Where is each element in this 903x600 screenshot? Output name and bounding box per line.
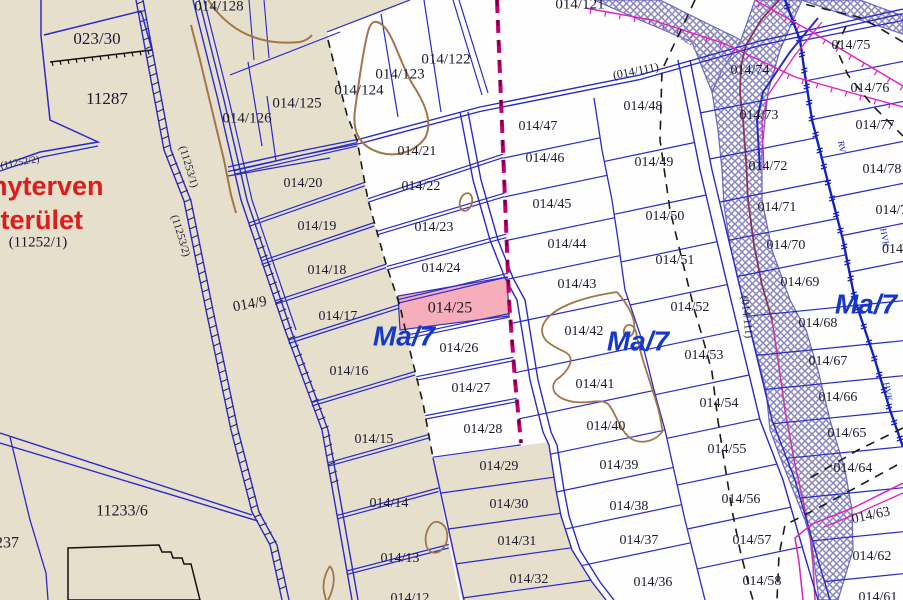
svg-text:014/21: 014/21 (398, 144, 437, 159)
svg-text:014/39: 014/39 (600, 458, 639, 473)
svg-text:014/24: 014/24 (422, 261, 461, 276)
svg-text:014/13: 014/13 (381, 551, 420, 566)
svg-text:014/12: 014/12 (391, 591, 430, 600)
svg-text:014/66: 014/66 (819, 390, 858, 405)
svg-text:014/22: 014/22 (402, 179, 441, 194)
svg-text:014/48: 014/48 (624, 99, 663, 114)
svg-text:014/28: 014/28 (464, 422, 503, 437)
svg-text:014/77: 014/77 (856, 118, 895, 133)
svg-text:014/71: 014/71 (758, 200, 797, 215)
svg-text:014/62: 014/62 (853, 549, 892, 564)
svg-text:014/37: 014/37 (620, 533, 659, 548)
svg-text:014/17: 014/17 (319, 309, 358, 324)
svg-text:014/123: 014/123 (375, 66, 424, 82)
svg-text:014/49: 014/49 (635, 155, 674, 170)
svg-text:014/75: 014/75 (832, 38, 871, 53)
svg-text:014/30: 014/30 (490, 497, 529, 512)
svg-text:014/50: 014/50 (646, 209, 685, 224)
svg-text:014/68: 014/68 (799, 316, 838, 331)
svg-text:014/58: 014/58 (743, 574, 782, 589)
svg-text:014/45: 014/45 (533, 197, 572, 212)
svg-text:014/26: 014/26 (440, 341, 479, 356)
svg-text:11237: 11237 (0, 535, 19, 552)
svg-text:014/56: 014/56 (722, 492, 761, 507)
svg-text:014/23: 014/23 (415, 220, 454, 235)
svg-text:014/72: 014/72 (749, 159, 788, 174)
svg-text:014/57: 014/57 (733, 533, 772, 548)
svg-text:014/76: 014/76 (851, 81, 890, 96)
svg-text:014/121: 014/121 (555, 0, 604, 12)
svg-text:014/74: 014/74 (731, 63, 770, 78)
svg-text:014/32: 014/32 (510, 572, 549, 587)
svg-text:014/122: 014/122 (421, 51, 470, 67)
svg-text:014/38: 014/38 (610, 499, 649, 514)
svg-text:014/29: 014/29 (480, 459, 519, 474)
svg-text:014/128: 014/128 (194, 0, 243, 14)
svg-text:014/55: 014/55 (708, 442, 747, 457)
svg-text:014/54: 014/54 (700, 396, 739, 411)
svg-text:014/125: 014/125 (272, 95, 321, 111)
svg-text:Ma/7: Ma/7 (607, 325, 671, 356)
svg-text:014/19: 014/19 (298, 219, 337, 234)
svg-text:014/42: 014/42 (565, 324, 604, 339)
svg-text:014/70: 014/70 (767, 238, 806, 253)
svg-text:Ma/7: Ma/7 (835, 288, 899, 319)
svg-text:Ma/7: Ma/7 (373, 320, 437, 351)
svg-text:014/52: 014/52 (671, 300, 710, 315)
svg-text:014/51: 014/51 (656, 253, 695, 268)
svg-text:014/126: 014/126 (222, 110, 272, 126)
svg-text:014/36: 014/36 (634, 575, 673, 590)
svg-text:014/73: 014/73 (740, 108, 779, 123)
svg-text:014/79: 014/79 (876, 203, 903, 218)
svg-text:014/40: 014/40 (587, 419, 626, 434)
svg-text:014/15: 014/15 (355, 432, 394, 447)
svg-text:023/30: 023/30 (73, 29, 120, 48)
svg-text:014/124: 014/124 (334, 82, 384, 98)
svg-text:014/64: 014/64 (834, 461, 873, 476)
svg-text:hyterven: hyterven (0, 171, 104, 201)
svg-text:014/47: 014/47 (519, 119, 558, 134)
svg-text:014/27: 014/27 (452, 381, 491, 396)
svg-text:014/31: 014/31 (498, 534, 537, 549)
svg-text:014/46: 014/46 (526, 151, 565, 166)
svg-text:RV: RV (836, 140, 848, 154)
svg-text:lterület: lterület (0, 205, 83, 235)
svg-text:014/14: 014/14 (370, 496, 409, 511)
svg-text:014/20: 014/20 (284, 176, 323, 191)
svg-text:014/69: 014/69 (781, 275, 820, 290)
svg-text:(11252/1): (11252/1) (9, 234, 68, 250)
svg-text:11287: 11287 (86, 89, 128, 108)
svg-text:014/67: 014/67 (809, 354, 848, 369)
svg-text:014/65: 014/65 (828, 426, 867, 441)
svg-text:11233/6: 11233/6 (96, 503, 148, 520)
svg-text:014/43: 014/43 (558, 277, 597, 292)
svg-text:014/44: 014/44 (548, 237, 587, 252)
svg-text:014/78: 014/78 (863, 162, 902, 177)
svg-text:014/16: 014/16 (330, 364, 369, 379)
svg-text:014/41: 014/41 (576, 377, 615, 392)
svg-text:014/61: 014/61 (859, 590, 898, 600)
svg-text:014/18: 014/18 (308, 263, 347, 278)
svg-text:014/25: 014/25 (428, 300, 472, 317)
svg-text:014/53: 014/53 (685, 348, 724, 363)
